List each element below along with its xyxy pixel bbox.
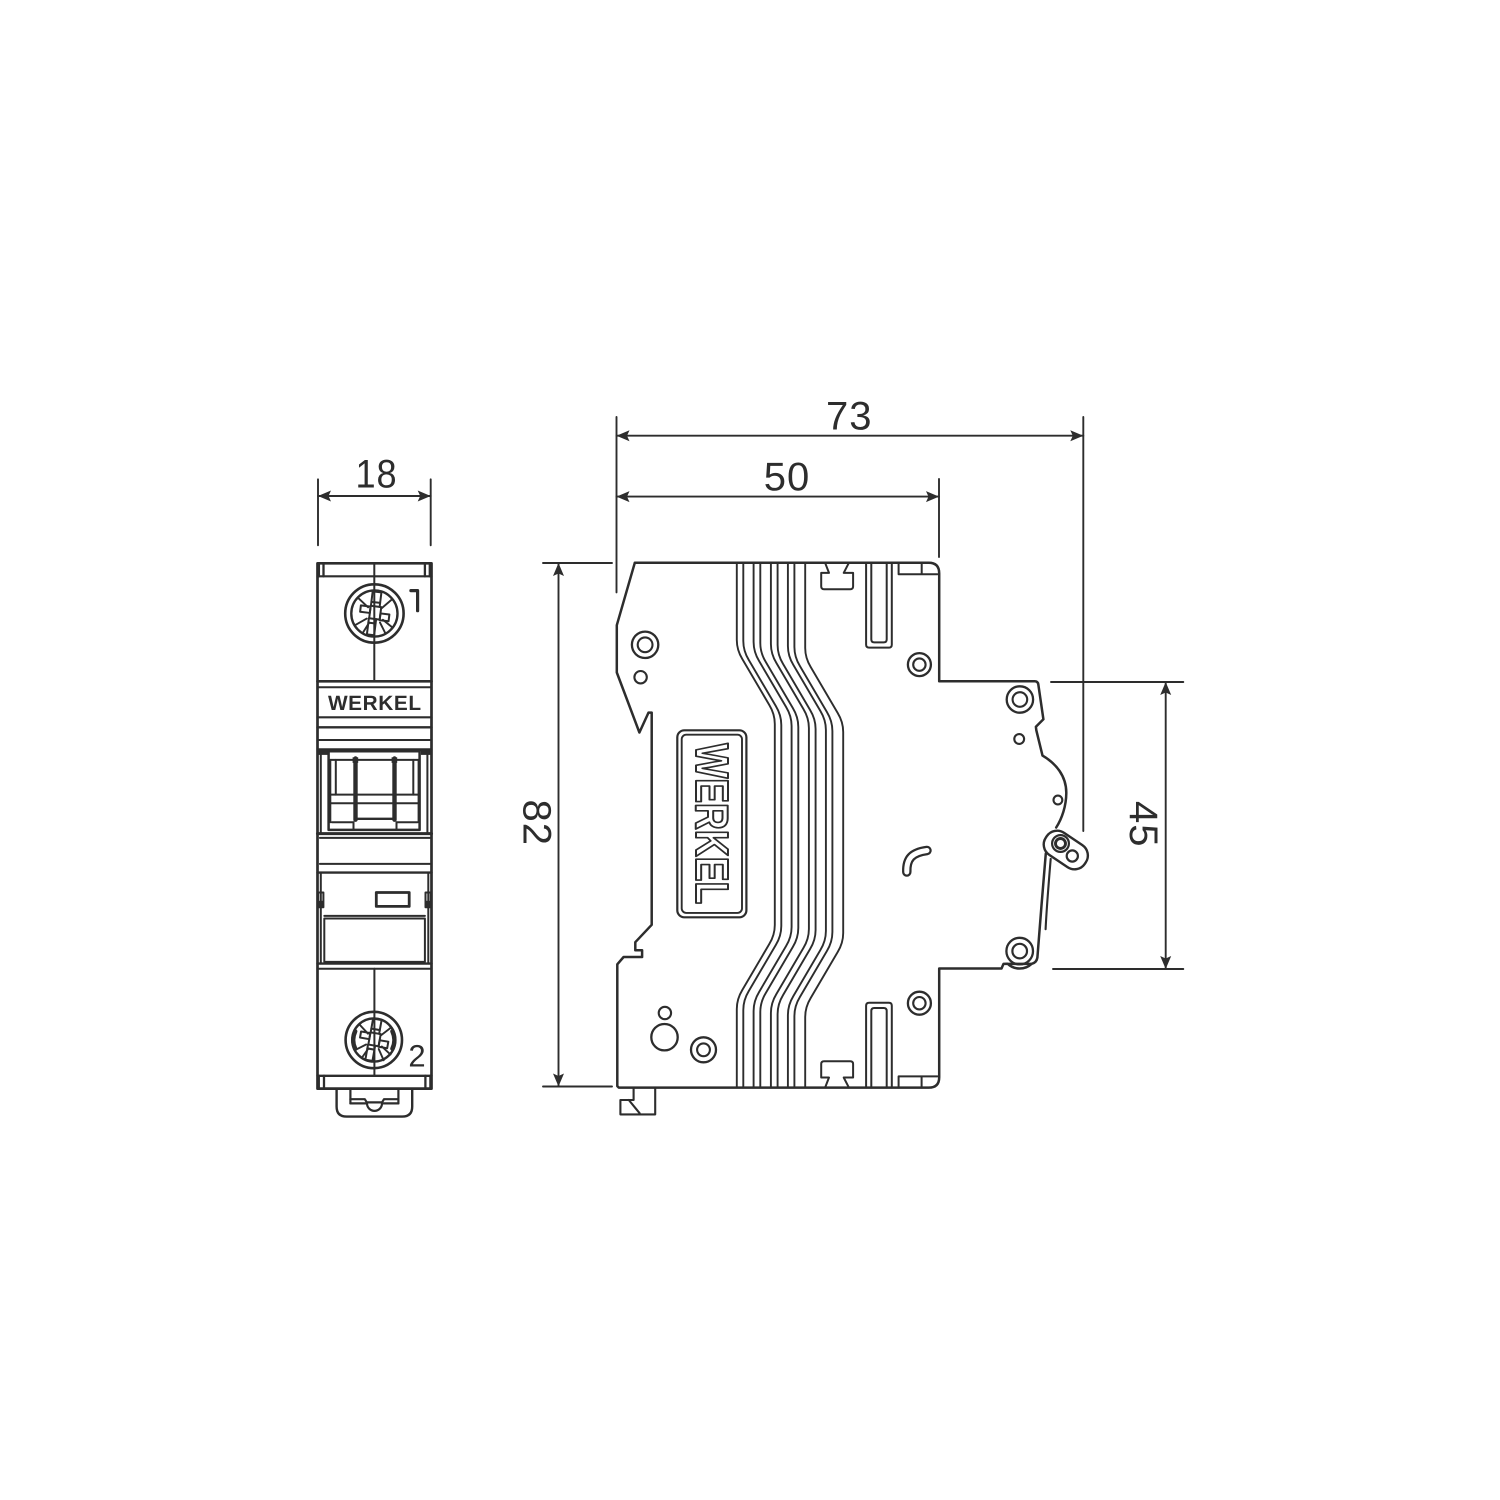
svg-text:73: 73 — [826, 394, 873, 438]
svg-text:18: 18 — [355, 452, 397, 496]
svg-text:WERKEL: WERKEL — [328, 692, 422, 715]
svg-text:50: 50 — [764, 455, 811, 499]
svg-text:WERKEL: WERKEL — [686, 743, 738, 904]
svg-text:2: 2 — [408, 1038, 425, 1073]
svg-text:45: 45 — [1121, 801, 1165, 848]
svg-text:82: 82 — [515, 799, 559, 846]
